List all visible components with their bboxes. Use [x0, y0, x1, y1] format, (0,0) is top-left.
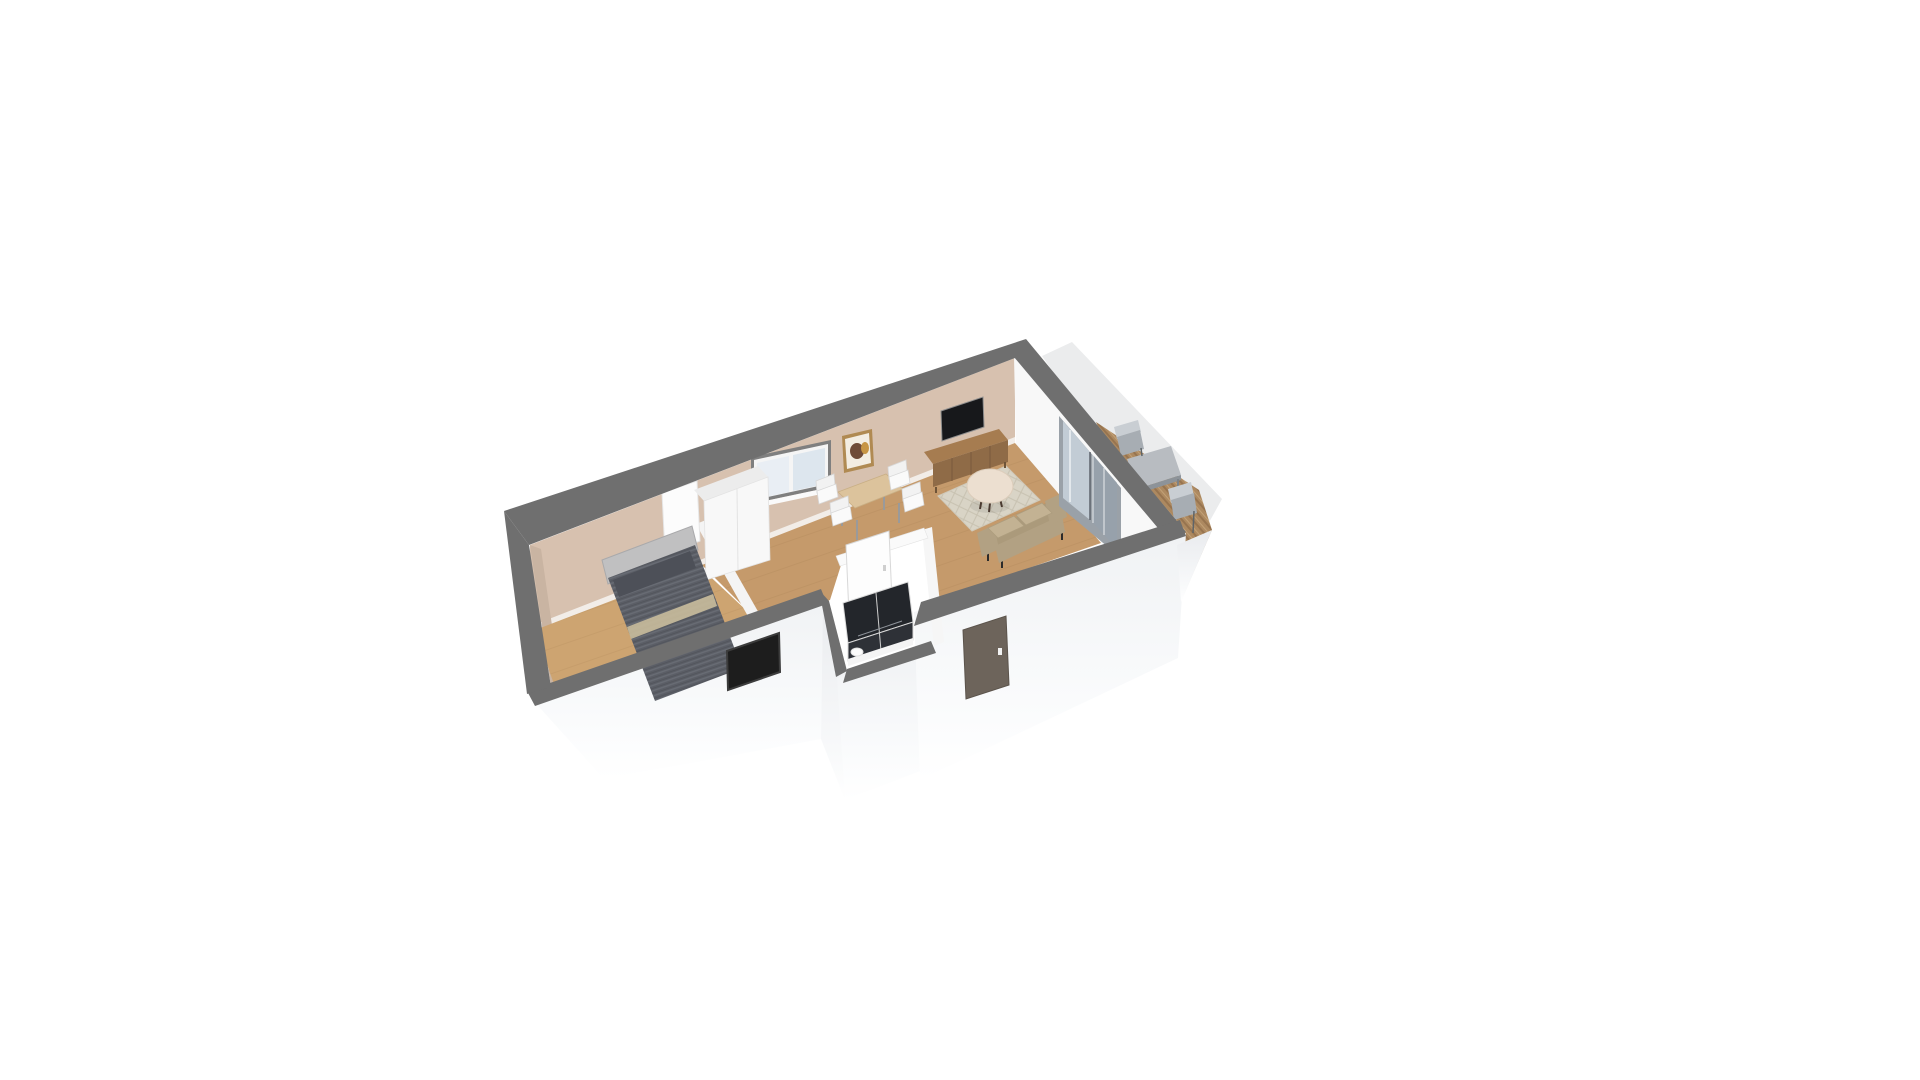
wall-art[interactable]	[842, 429, 874, 473]
bathroom-door-handle	[883, 565, 886, 571]
floorplan-3d-viewport[interactable]	[0, 0, 1920, 1080]
entry-door[interactable]	[963, 616, 1009, 699]
entry-door-handle	[998, 648, 1002, 655]
round-coffee-table[interactable]	[967, 469, 1013, 513]
toilet[interactable]	[851, 648, 863, 656]
